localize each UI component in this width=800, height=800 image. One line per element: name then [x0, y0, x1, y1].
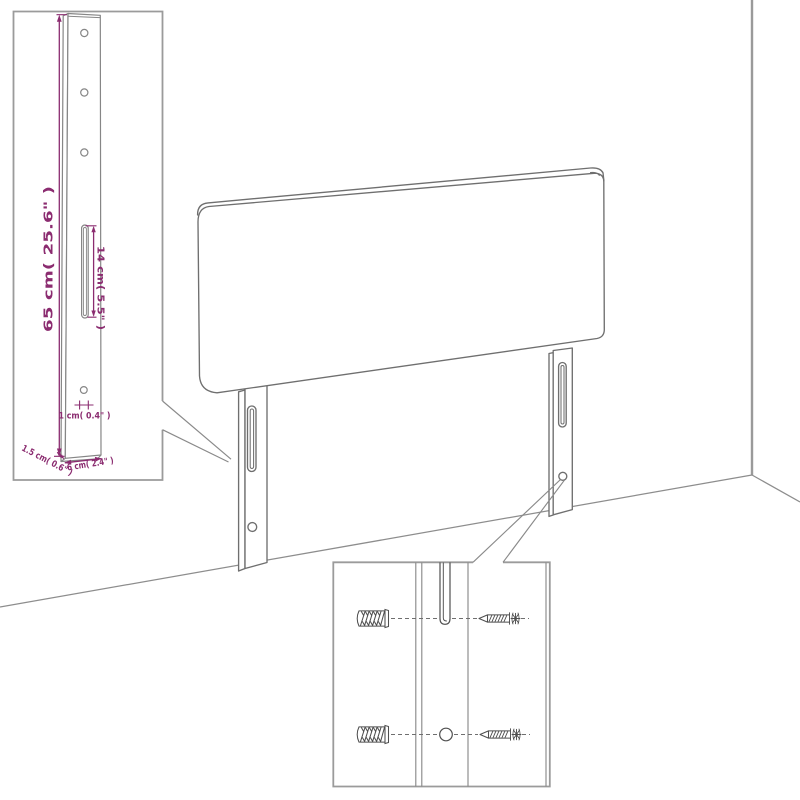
dimension-height-label: 65 cm( 25.6" )	[42, 186, 56, 332]
product-diagram: 65 cm( 25.6" ) 14 cm( 5.5" ) 1 cm( 0.4" …	[0, 0, 800, 800]
right-leg	[549, 348, 572, 516]
diagram-canvas: 65 cm( 25.6" ) 14 cm( 5.5" ) 1 cm( 0.4" …	[0, 0, 800, 800]
dimension-slot-label: 14 cm( 5.5" )	[95, 246, 106, 330]
dimension-hole-label: 1 cm( 0.4" )	[59, 412, 111, 422]
left-leg	[239, 384, 267, 571]
leg-post-drawing	[61, 14, 101, 462]
background	[0, 0, 800, 800]
right-leg-front-face	[553, 348, 572, 515]
left-leg-side-face	[239, 390, 245, 571]
